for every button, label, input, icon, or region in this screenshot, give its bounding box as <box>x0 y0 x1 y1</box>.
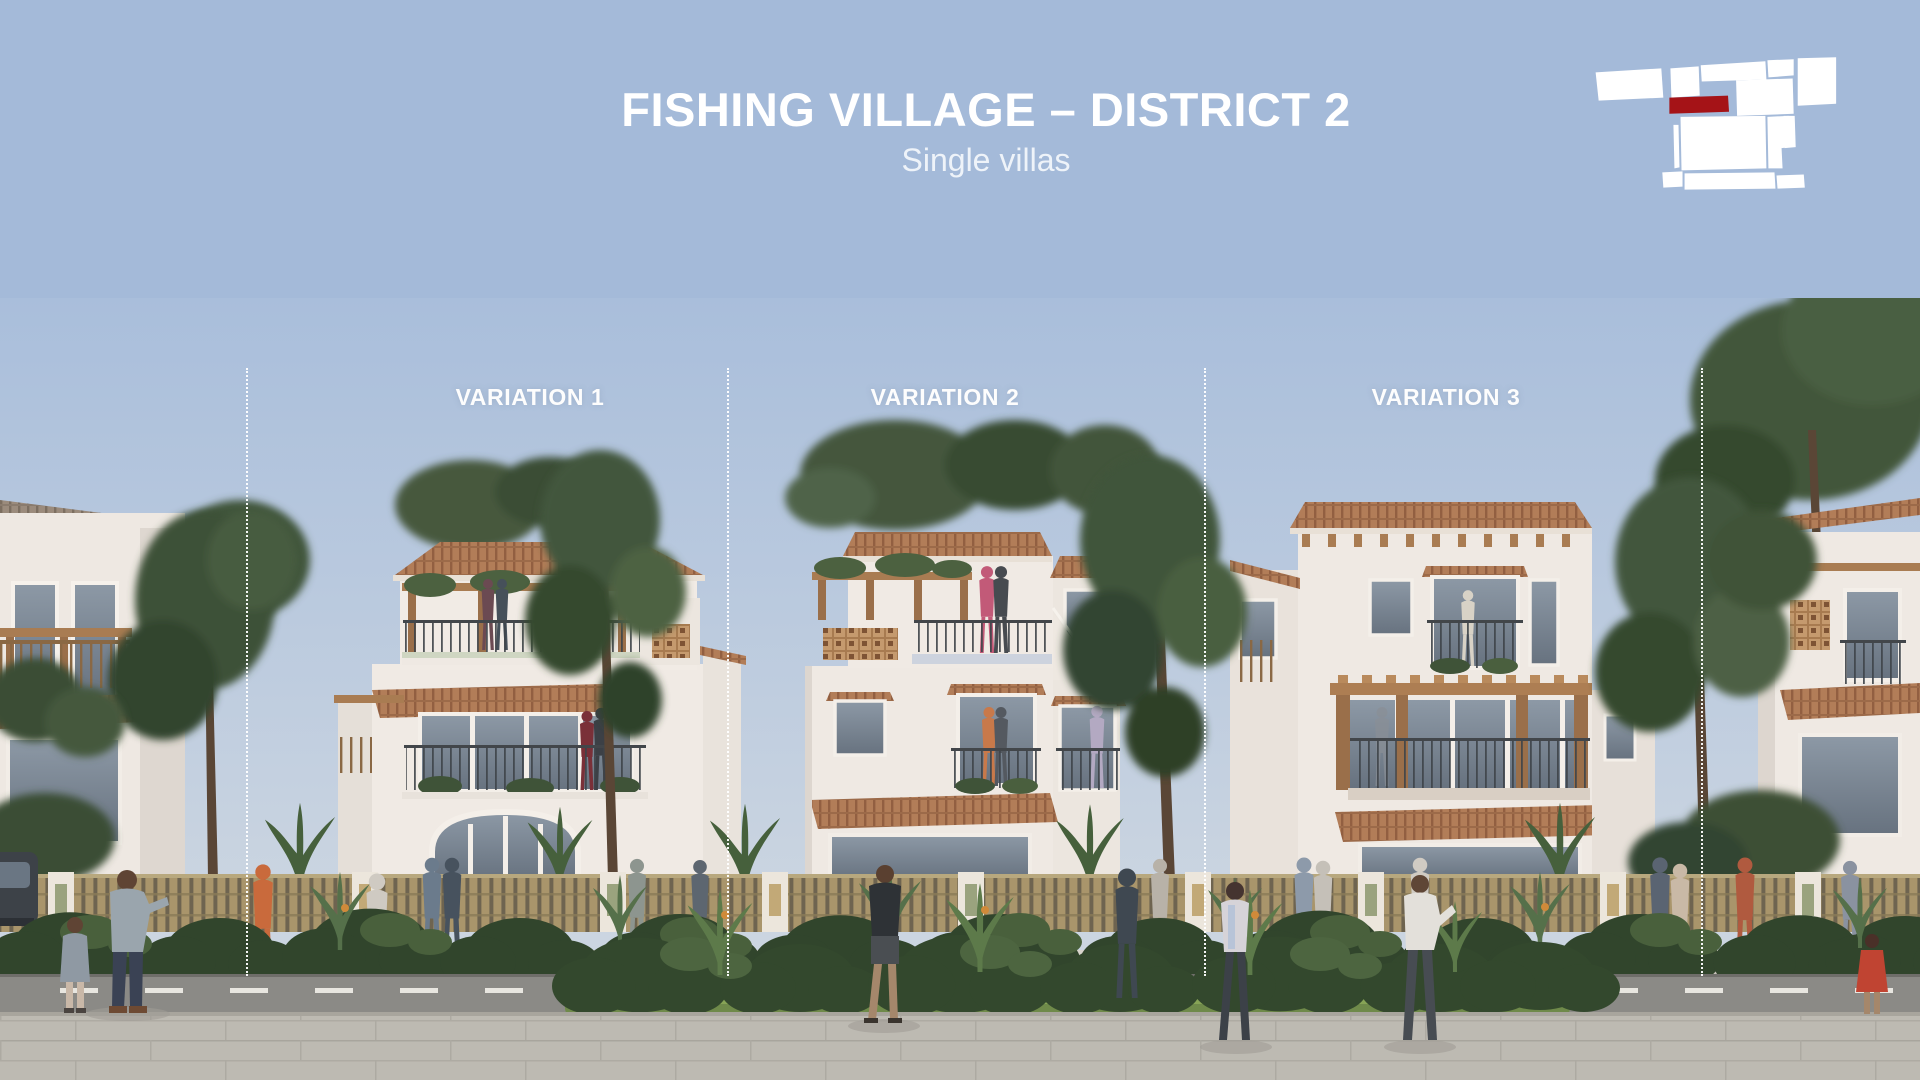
variation-2-label: VARIATION 2 <box>871 384 1020 411</box>
divider-line-1 <box>246 368 248 976</box>
parked-car <box>0 852 38 926</box>
divider-line-2 <box>727 368 729 976</box>
slide-header: FISHING VILLAGE – DISTRICT 2 Single vill… <box>0 0 1920 298</box>
divider-line-4 <box>1701 368 1703 976</box>
site-plan-logo <box>1566 36 1890 228</box>
presentation-slide: FISHING VILLAGE – DISTRICT 2 Single vill… <box>0 0 1920 1080</box>
variation-1-label: VARIATION 1 <box>456 384 605 411</box>
divider-line-3 <box>1204 368 1206 976</box>
villa-variation-2 <box>805 532 1128 880</box>
second-floor-pergola <box>1330 675 1592 790</box>
rendering-scene <box>0 298 1920 1080</box>
logo-highlight-district <box>1669 96 1729 114</box>
plaza-pavement <box>0 1012 1920 1080</box>
site-plan-logo-icon <box>1566 36 1890 228</box>
street-elevation-rendering <box>0 298 1920 1080</box>
variation-3-label: VARIATION 3 <box>1372 384 1521 411</box>
